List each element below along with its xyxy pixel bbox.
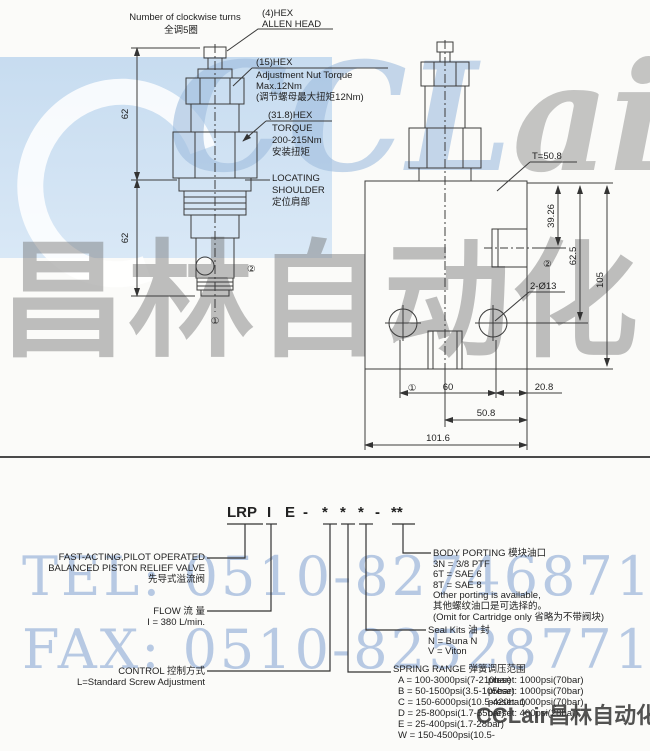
hex-callout-4: 安装扭矩 [272, 146, 311, 158]
control-title: CONTROL 控制方式 [0, 666, 205, 677]
block-port1-label: ① [408, 383, 417, 394]
spring-row-e: E = 25-400psi(1.7-28bar) [398, 719, 526, 730]
spring-preset-c: preset: 1000psi(70bar) [488, 697, 584, 708]
model-code-series: E [285, 504, 295, 521]
dim-62-upper: 62 [120, 109, 131, 120]
valve-type-line1: FAST-ACTING,PILOT OPERATED [0, 552, 205, 563]
spring-range-title: SPRING RANGE 弹簧调压范围 [393, 664, 526, 675]
model-code-family: LRP [227, 504, 257, 521]
t-depth-label: T=50.8 [532, 151, 562, 162]
spring-row-c: C = 150-6000psi(10.5-420bar)preset: 1000… [398, 697, 526, 708]
dim-508: 50.8 [477, 408, 496, 419]
nut-callout-2: Adjustment Nut Torque [256, 70, 352, 81]
datasheet-page: CCLair 昌林自动化 TEL: 0510-82746871 FAX: 051… [0, 0, 650, 751]
nut-callout-3: Max.12Nm [256, 81, 302, 92]
flow-title: FLOW 流 量 [0, 606, 205, 617]
body-porting-note3: (Omit for Cartridge only 省略为不带阀块) [433, 613, 604, 624]
control-description: CONTROL 控制方式 L=Standard Screw Adjustment [0, 666, 205, 688]
locating-callout-1: LOCATING [272, 173, 320, 184]
hex-callout-2: TORQUE [272, 123, 312, 134]
dim-1016: 101.6 [426, 433, 450, 444]
nut-callout-4: (调节螺母最大扭矩12Nm) [256, 91, 364, 103]
flow-description: FLOW 流 量 I = 380 L/min. [0, 606, 205, 628]
cartridge-port1-label: ① [211, 316, 220, 327]
spring-range-description: SPRING RANGE 弹簧调压范围 A = 100-3000psi(7-21… [393, 664, 526, 741]
seal-kits-description: Seal Kits 油 封 N = Buna N V = Viton [428, 626, 490, 658]
hex-callout-3: 200-215Nm [272, 135, 322, 146]
hex-callout-1: (31.8)HEX [268, 110, 313, 121]
spring-preset-d: preset: 400psi(28bar) [488, 708, 578, 719]
body-porting-title: BODY PORTING 模块油口 [433, 549, 604, 560]
body-block-labels: T=50.8 39.26 62.5 105 2-Ø13 ② ① 60 20.8 … [408, 151, 606, 444]
body-porting-description: BODY PORTING 模块油口 3N = 3/8 PTF 6T = SAE … [433, 549, 604, 623]
flow-value: I = 380 L/min. [0, 617, 205, 628]
spring-row-d: D = 25-800psi(1.7-55bar)preset: 400psi(2… [398, 708, 526, 719]
body-porting-note2: 其他螺纹油口是可选择的。 [433, 602, 604, 613]
spring-row-a: A = 100-3000psi(7-210bar)preset: 1000psi… [398, 675, 526, 686]
dim-62-lower: 62 [120, 233, 131, 244]
nut-callout-1: (15)HEX [256, 57, 293, 68]
spring-range-e: E = 25-400psi(1.7-28bar) [398, 719, 504, 730]
block-port2-label: ② [543, 259, 552, 270]
spring-range-table: A = 100-3000psi(7-210bar)preset: 1000psi… [398, 675, 526, 741]
dim-625: 62.5 [568, 247, 579, 266]
allen-head-label-2: ALLEN HEAD [262, 19, 321, 30]
spring-row-b: B = 50-1500psi(3.5-105bar)preset: 1000ps… [398, 686, 526, 697]
seal-kits-opt2: V = Viton [428, 647, 490, 658]
valve-type-description: FAST-ACTING,PILOT OPERATED BALANCED PIST… [0, 552, 205, 585]
model-code-flow: I [267, 504, 271, 521]
model-code-dash-2: - [375, 504, 380, 521]
dim-208: 20.8 [535, 382, 554, 393]
locating-callout-2: SHOULDER [272, 185, 325, 196]
turns-label-en: Number of clockwise turns [129, 12, 241, 23]
dim-105: 105 [595, 272, 606, 288]
technical-drawings: Number of clockwise turns 全调5圈 (4)HEX AL… [0, 0, 650, 456]
model-code-star-1: * [322, 504, 328, 521]
dim-3926: 39.26 [546, 204, 557, 228]
seal-kits-title: Seal Kits 油 封 [428, 626, 490, 637]
spring-preset-a: preset: 1000psi(70bar) [488, 675, 584, 686]
cartridge-labels: Number of clockwise turns 全调5圈 (4)HEX AL… [120, 8, 364, 327]
model-code-star-2: * [340, 504, 346, 521]
body-block-drawing [365, 40, 613, 450]
model-code-star-4: ** [391, 504, 403, 521]
holes-label: 2-Ø13 [530, 281, 556, 292]
spring-row-w: W = 150-4500psi(10.5- [398, 730, 526, 741]
dim-60: 60 [443, 382, 454, 393]
control-value: L=Standard Screw Adjustment [0, 677, 205, 688]
cartridge-port2-label: ② [247, 264, 256, 275]
spring-range-w: W = 150-4500psi(10.5- [398, 730, 495, 741]
model-code-star-3: * [358, 504, 364, 521]
turns-label-zh: 全调5圈 [164, 24, 198, 36]
valve-type-line3: 先导式溢流阀 [0, 574, 205, 585]
locating-callout-3: 定位肩部 [272, 196, 310, 208]
valve-type-line2: BALANCED PISTON RELIEF VALVE [0, 563, 205, 574]
allen-head-label-1: (4)HEX [262, 8, 294, 19]
model-code-dash-1: - [303, 504, 308, 521]
spring-preset-b: preset: 1000psi(70bar) [488, 686, 584, 697]
